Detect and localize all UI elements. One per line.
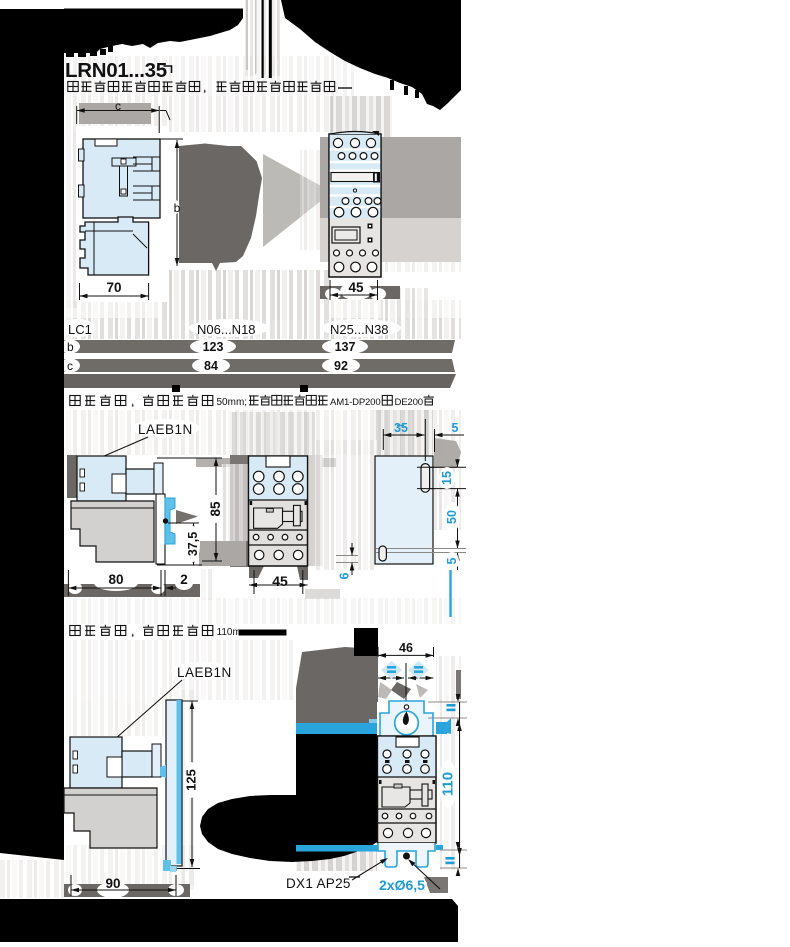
svg-text:35: 35 — [394, 421, 408, 435]
svg-text:5: 5 — [445, 557, 459, 564]
svg-text:110: 110 — [440, 772, 457, 796]
svg-text:LRN01...35: LRN01...35 — [65, 59, 167, 82]
svg-text:84: 84 — [204, 359, 218, 373]
svg-text:N25...N38: N25...N38 — [330, 322, 389, 337]
svg-text:c: c — [67, 359, 73, 373]
svg-text:DE200: DE200 — [395, 397, 423, 408]
svg-text:6: 6 — [338, 572, 352, 579]
svg-text:b: b — [67, 340, 74, 354]
svg-text:85: 85 — [208, 501, 223, 517]
svg-text:5: 5 — [452, 421, 459, 435]
svg-text:2: 2 — [180, 572, 188, 587]
svg-text:92: 92 — [334, 359, 348, 373]
svg-text:45: 45 — [272, 573, 288, 589]
svg-text:N06...N18: N06...N18 — [197, 322, 256, 337]
svg-text:LC1: LC1 — [68, 322, 92, 337]
svg-text:37,5: 37,5 — [186, 532, 200, 556]
svg-text:DX1 AP25: DX1 AP25 — [286, 876, 351, 891]
svg-text:50mm;: 50mm; — [217, 397, 248, 408]
svg-text:50: 50 — [445, 510, 459, 524]
svg-text:15: 15 — [440, 471, 454, 485]
svg-text:45: 45 — [348, 280, 364, 295]
svg-text:LAEB1N: LAEB1N — [138, 422, 193, 437]
svg-text:137: 137 — [335, 340, 356, 354]
svg-text:80: 80 — [108, 572, 123, 587]
svg-text:AM1-DP200: AM1-DP200 — [330, 397, 380, 408]
svg-text:LAEB1N: LAEB1N — [177, 665, 232, 680]
svg-text:125: 125 — [184, 769, 199, 791]
svg-text:70: 70 — [106, 280, 121, 295]
svg-text:90: 90 — [105, 876, 120, 891]
svg-text:123: 123 — [203, 340, 224, 354]
svg-text:46: 46 — [399, 641, 413, 655]
svg-text:b: b — [174, 201, 181, 215]
svg-text:2xØ6,5: 2xØ6,5 — [379, 877, 425, 893]
